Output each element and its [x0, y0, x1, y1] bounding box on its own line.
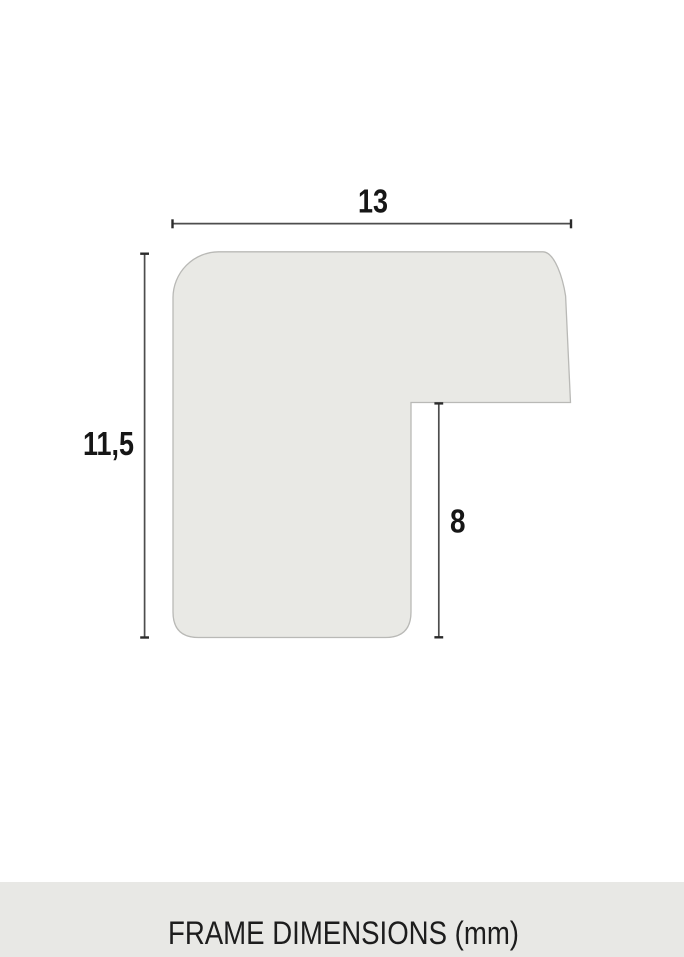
svg-text:11,5: 11,5 [83, 425, 134, 462]
svg-text:13: 13 [358, 183, 388, 220]
svg-text:8: 8 [450, 503, 466, 540]
svg-text:FRAME DIMENSIONS (mm): FRAME DIMENSIONS (mm) [168, 915, 519, 951]
